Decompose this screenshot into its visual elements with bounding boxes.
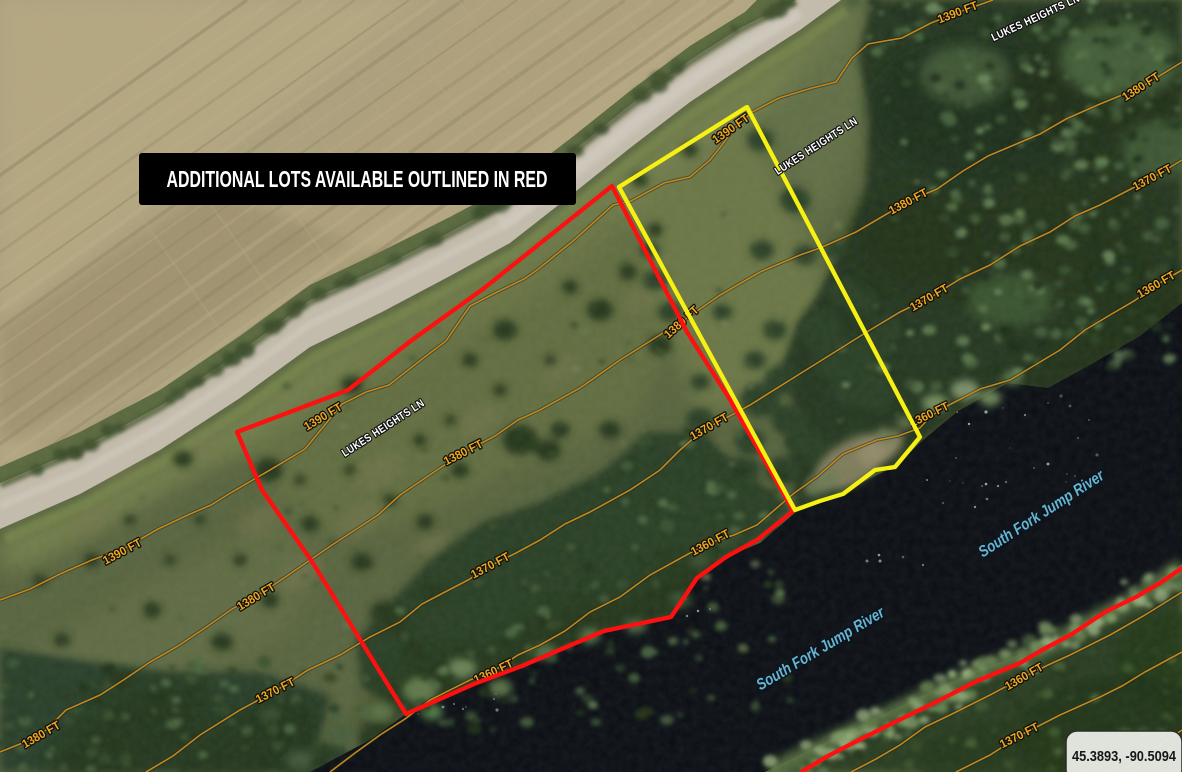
svg-text:45.3893, -90.5094: 45.3893, -90.5094 bbox=[1072, 748, 1177, 765]
svg-text:ADDITIONAL LOTS AVAILABLE OUTL: ADDITIONAL LOTS AVAILABLE OUTLINED IN RE… bbox=[167, 166, 548, 192]
